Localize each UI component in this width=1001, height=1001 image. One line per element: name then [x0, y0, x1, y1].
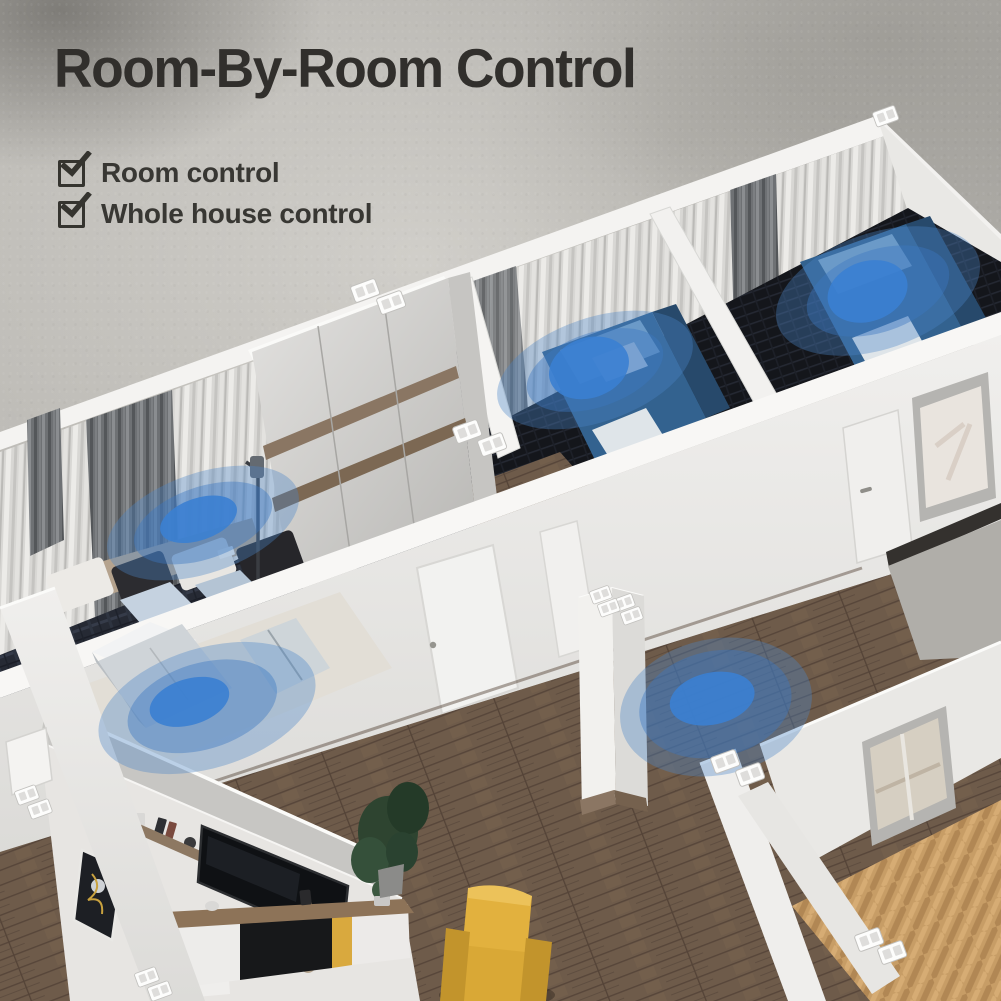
checkbox-checked-icon: [58, 160, 85, 187]
page-title: Room-By-Room Control: [54, 36, 791, 100]
door-handle: [430, 642, 436, 648]
checklist-item: Whole house control: [58, 198, 372, 230]
checklist-label: Whole house control: [101, 198, 372, 230]
checkbox-checked-icon: [58, 201, 85, 228]
feature-checklist: Room control Whole house control: [58, 157, 372, 239]
smart-switch: [872, 105, 899, 127]
checklist-item: Room control: [58, 157, 372, 189]
marketing-image: Room-By-Room Control Room control Whole …: [0, 0, 1001, 1001]
checklist-label: Room control: [101, 157, 279, 189]
house-cutaway-render: [0, 0, 1001, 1001]
dark-curtain: [27, 408, 64, 556]
